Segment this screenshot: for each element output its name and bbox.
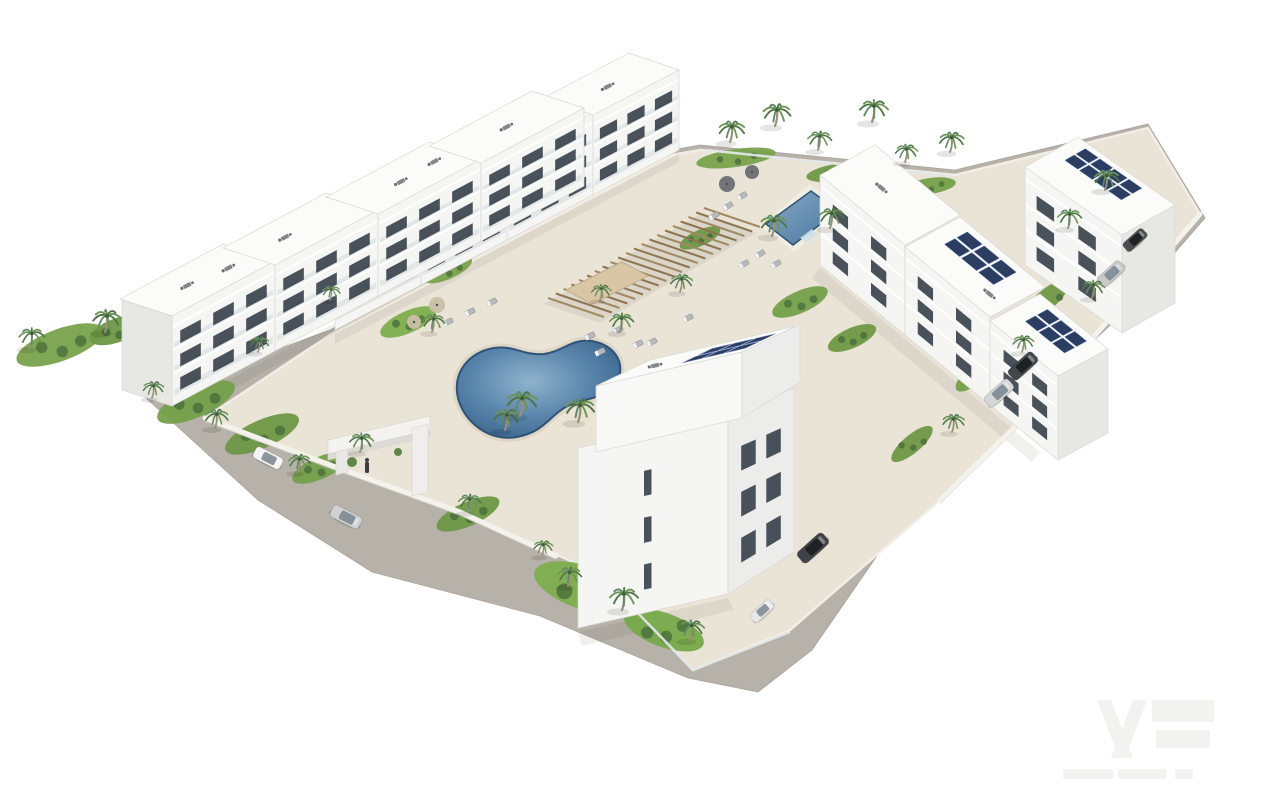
gate-planter [394,448,402,456]
person-figure [365,462,369,473]
watermark-text-bar [1063,769,1113,779]
architectural-render-page [0,0,1280,800]
watermark-logo [1063,700,1214,779]
palm-tree [893,144,918,166]
palm-tree [937,132,964,157]
palm-tree [760,104,791,131]
palm-tree [716,121,744,147]
watermark-text-bar [1118,769,1166,779]
palm-tree [805,131,831,155]
render-image [0,0,1280,800]
watermark-text-bar [1175,769,1193,779]
palm-tree [857,100,888,128]
gate-planter [347,457,357,467]
